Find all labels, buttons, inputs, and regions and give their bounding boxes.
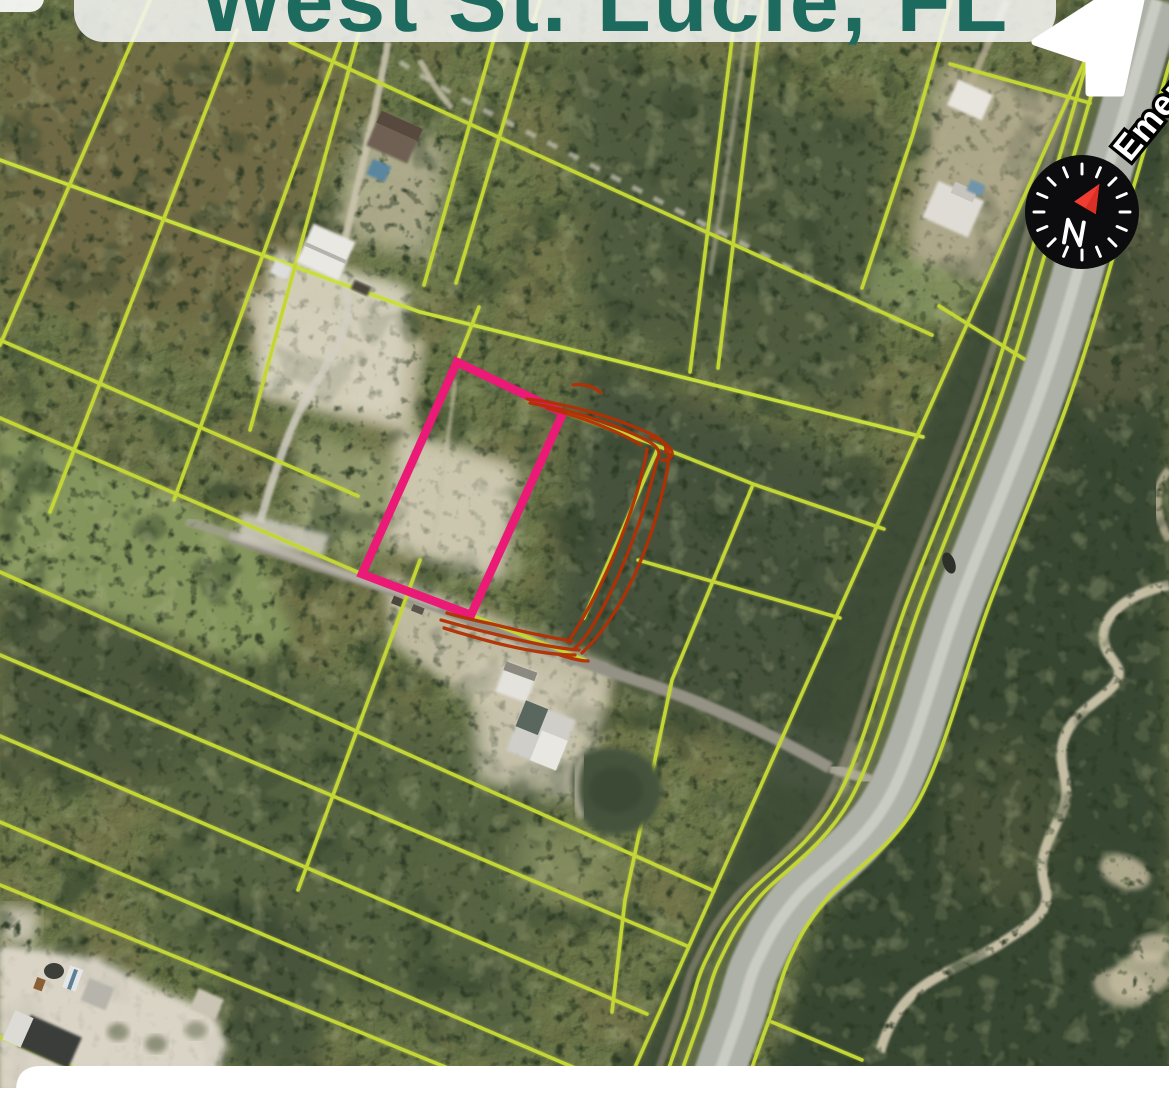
svg-text:West St. Lucie, FL: West St. Lucie, FL bbox=[200, 0, 1010, 50]
